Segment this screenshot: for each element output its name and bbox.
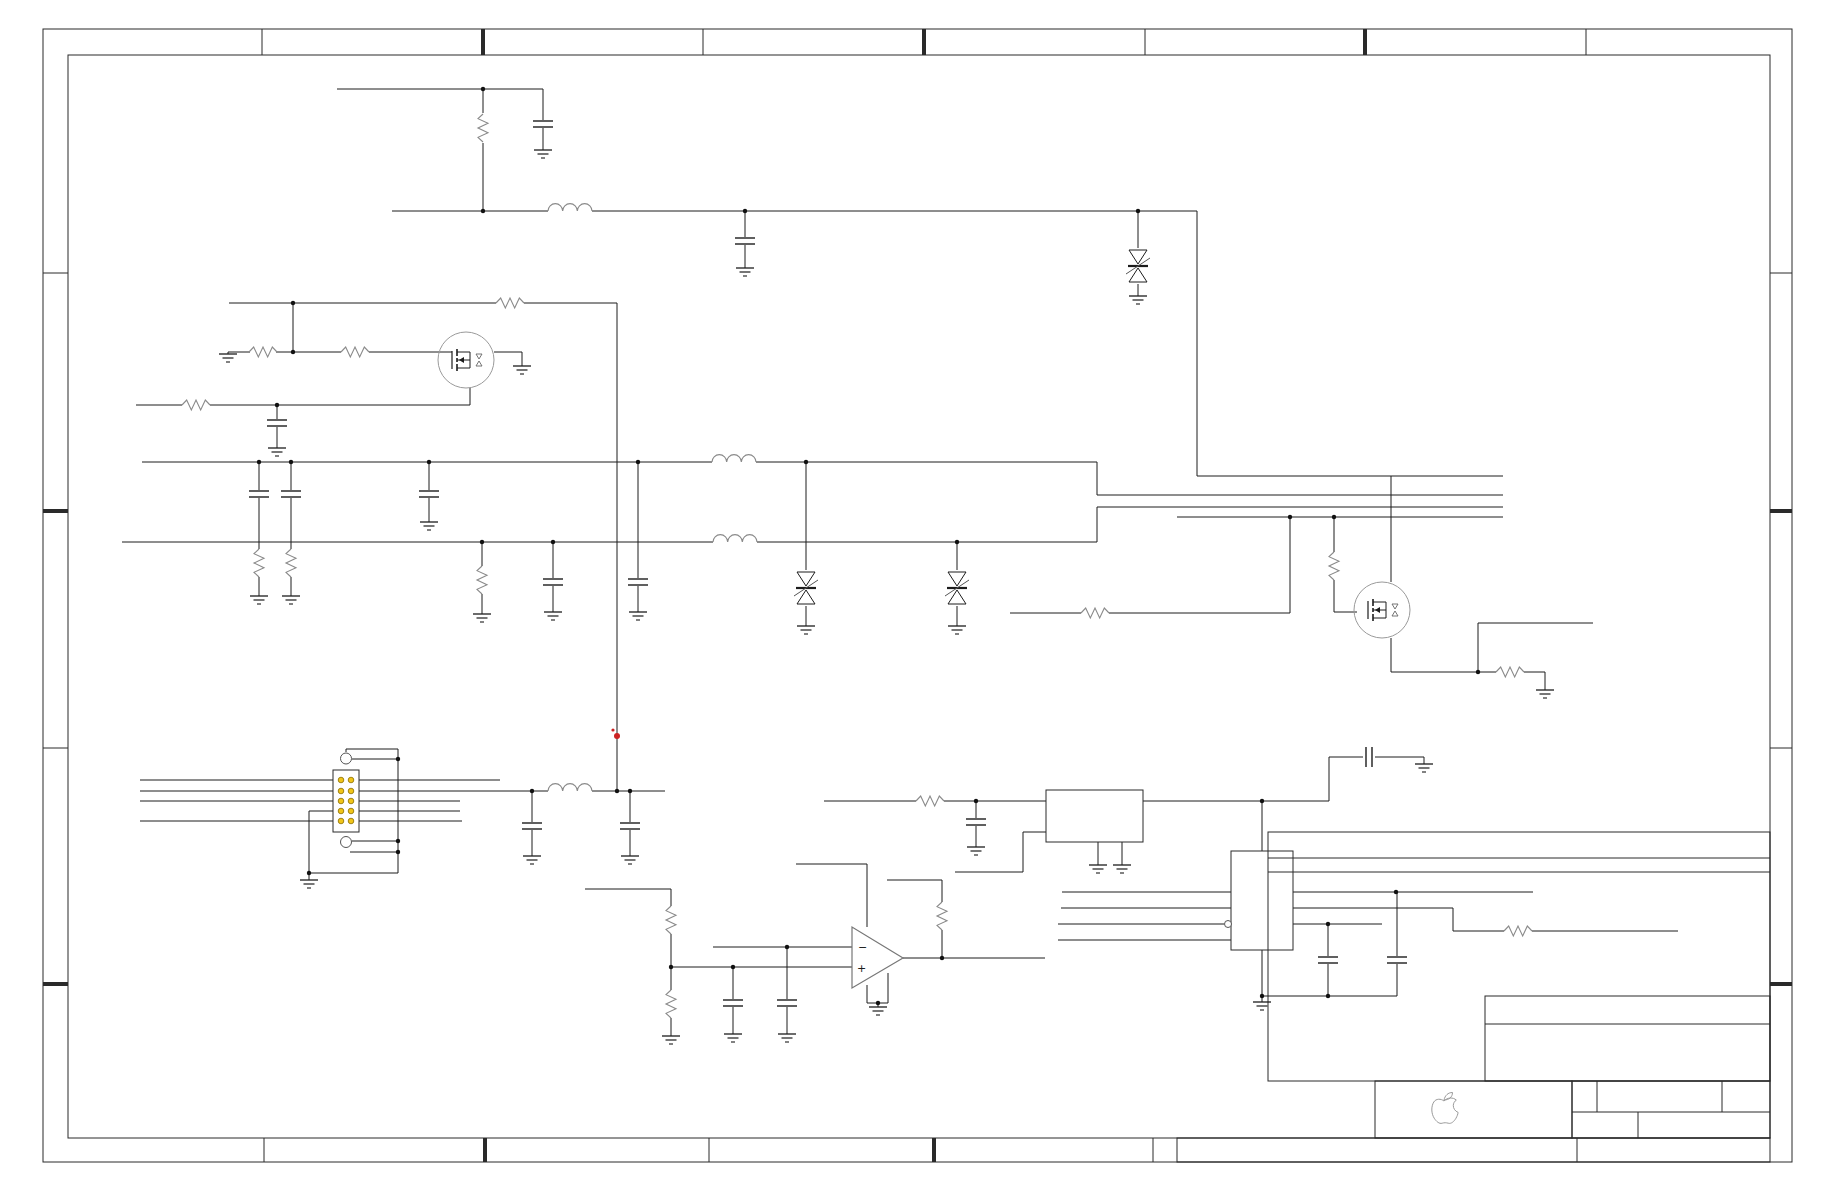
border-outer (43, 29, 1792, 1162)
opamp (852, 927, 903, 988)
connector-pin (348, 798, 354, 804)
ic-box-2 (1231, 851, 1293, 950)
junction-dot (289, 460, 293, 464)
junction-dot (307, 871, 311, 875)
title-block-cells (1572, 1081, 1770, 1138)
connector-body (333, 770, 359, 832)
resistor (477, 566, 487, 594)
junction-dot (669, 965, 673, 969)
junction-dot (1326, 994, 1330, 998)
inversion-bubble (1225, 921, 1232, 928)
resistor (1504, 926, 1532, 936)
schematic-page: −+ (0, 0, 1836, 1188)
red-marker (614, 733, 620, 739)
resistor (478, 114, 488, 142)
body-diode (476, 361, 482, 366)
resistor (666, 906, 676, 934)
junction-dot (974, 799, 978, 803)
junction-dot (955, 540, 959, 544)
junction-dot (481, 87, 485, 91)
resistor (254, 549, 264, 577)
body-diode (1392, 604, 1398, 609)
connector-pin (338, 788, 344, 794)
resistor (249, 347, 277, 357)
connector-pin (348, 777, 354, 783)
junction-dot (628, 789, 632, 793)
junction-dot (1326, 922, 1330, 926)
ic-box-1 (1046, 790, 1143, 842)
apple-logo-icon (1432, 1098, 1458, 1123)
red-marker (611, 728, 614, 731)
connector-pin (348, 788, 354, 794)
junction-dot (396, 850, 400, 854)
resistor (341, 347, 369, 357)
opamp-minus-label: − (858, 941, 867, 954)
resistor (286, 549, 296, 577)
revision-table (1268, 832, 1770, 1081)
junction-dot (291, 301, 295, 305)
connector-mount-hole (341, 753, 352, 764)
junction-dot (1288, 515, 1292, 519)
inductor (713, 535, 757, 542)
junction-dot (785, 945, 789, 949)
resistor (1496, 667, 1524, 677)
connector-pin (348, 808, 354, 814)
junction-dot (804, 460, 808, 464)
junction-dot (1476, 670, 1480, 674)
inductor (548, 204, 592, 211)
junction-dot (940, 956, 944, 960)
mosfet-arrow (1375, 607, 1380, 613)
junction-dot (427, 460, 431, 464)
revision-sub-table (1485, 996, 1770, 1081)
junction-dot (275, 403, 279, 407)
title-block-logo-cell (1375, 1081, 1572, 1138)
resistor (182, 400, 210, 410)
junction-dot (396, 839, 400, 843)
body-diode (1392, 611, 1398, 616)
junction-dot (1394, 890, 1398, 894)
junction-dot (530, 789, 534, 793)
connector-pin (338, 798, 344, 804)
junction-dot (291, 350, 295, 354)
resistor (666, 990, 676, 1018)
junction-dot (481, 209, 485, 213)
junction-dot (731, 965, 735, 969)
resistor (1329, 552, 1339, 580)
resistor (937, 902, 947, 930)
connector-pin (338, 818, 344, 824)
mosfet-arrow (459, 357, 464, 363)
connector-mount-hole (341, 837, 352, 848)
junction-dot (1260, 994, 1264, 998)
connector-pin (348, 818, 354, 824)
connector-pin (338, 808, 344, 814)
junction-dot (551, 540, 555, 544)
junction-dot (615, 789, 619, 793)
opamp-plus-label: + (857, 962, 866, 975)
junction-dot (396, 757, 400, 761)
junction-dot (480, 540, 484, 544)
junction-dot (743, 209, 747, 213)
junction-dot (636, 460, 640, 464)
connector-pin (338, 777, 344, 783)
junction-dot (1332, 515, 1336, 519)
body-diode (476, 354, 482, 359)
junction-dot (1136, 209, 1140, 213)
junction-dot (876, 1001, 880, 1005)
junction-dot (257, 460, 261, 464)
border-inner (68, 55, 1770, 1138)
inductor (548, 784, 592, 791)
resistor (496, 298, 524, 308)
title-block-strip (1177, 1138, 1770, 1162)
junction-dot (1260, 799, 1264, 803)
resistor (916, 796, 944, 806)
schematic-canvas: −+ (0, 0, 1836, 1188)
resistor (1081, 608, 1109, 618)
inductor (712, 455, 756, 462)
